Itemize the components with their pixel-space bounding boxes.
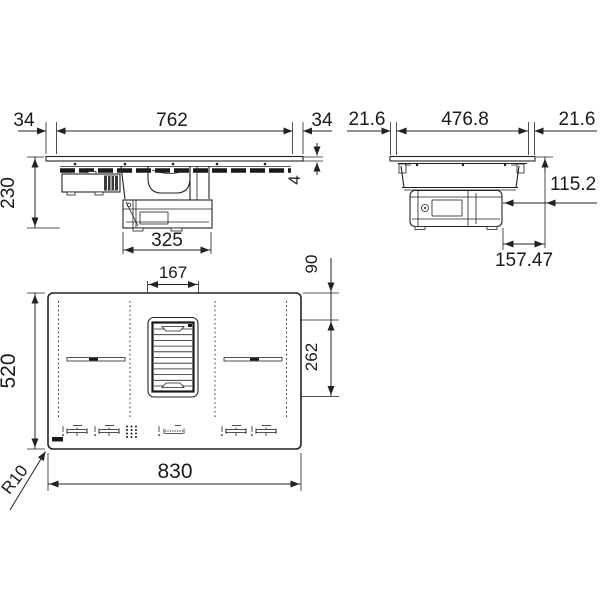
dim-front-left-overhang: 21.6 (349, 109, 386, 130)
dim-side-body-width: 762 (156, 110, 188, 131)
dim-front-right-overhang: 21.6 (559, 109, 596, 130)
dim-top-grille-length: 262 (302, 343, 321, 371)
cooking-zone-marker-left (67, 358, 125, 362)
dim-top-hob-width: 830 (157, 460, 192, 483)
brand-logo (52, 437, 63, 442)
dim-side-glass-thickness: 4 (285, 175, 304, 184)
vent-grille (148, 318, 198, 398)
grille-handle-top (162, 327, 184, 332)
dim-front-body-depth: 476.8 (441, 109, 489, 130)
dim-side-blower-width: 325 (151, 230, 183, 251)
side-glass-plate (46, 157, 303, 162)
dim-top-grille-top-offset: 90 (302, 255, 321, 274)
dim-front-blower-offset: 157.47 (495, 250, 553, 271)
dim-top-hob-depth: 520 (0, 353, 20, 388)
dim-side-left-overhang: 34 (13, 110, 35, 131)
technical-drawing: 34 762 34 230 4 325 (0, 0, 600, 600)
front-blower-box (410, 191, 502, 230)
side-electronics-box (62, 172, 120, 196)
grille-handle-bottom (162, 383, 184, 388)
dim-front-under-glass-height: 115.2 (550, 174, 596, 195)
cooking-zone-marker-right (224, 358, 282, 362)
front-glass-plate (390, 157, 535, 162)
dim-side-total-height: 230 (0, 177, 19, 209)
dim-top-grille-width: 167 (159, 263, 187, 282)
dim-side-right-overhang: 34 (311, 110, 333, 131)
